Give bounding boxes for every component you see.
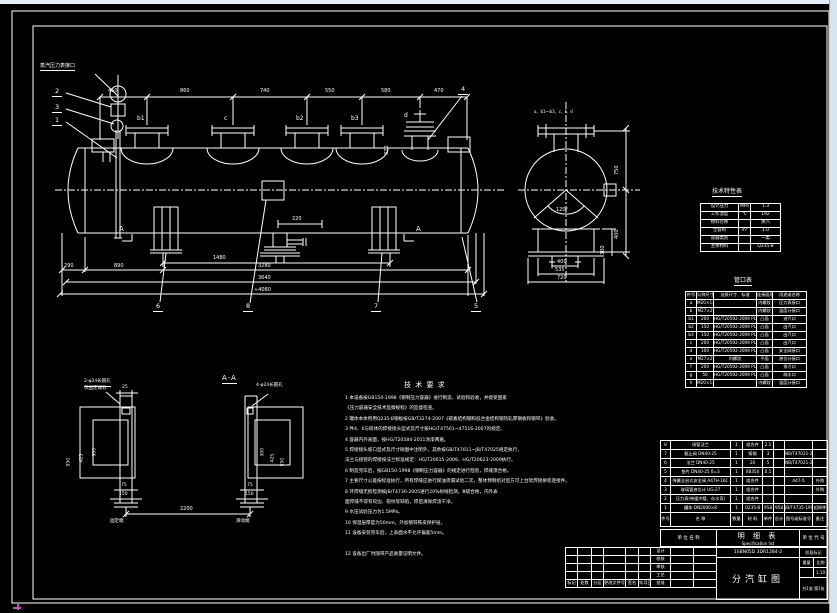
nozzle-table: 符号公称尺寸连接尺寸、标准连接面形式用途或名称 aM20×1.5内螺纹压力表接口… <box>685 291 807 388</box>
dim-3280: 3280 <box>258 264 271 269</box>
table-row: 容器类别一类 <box>701 236 781 244</box>
table-row: b3150HG/T20592-2009 PL150(B)-25 RF凸面出汽口 <box>686 332 807 340</box>
cad-drawing-canvas: 蒸汽压力表接口 2 3 1 4 6 8 7 5 b1 c b2 b3 d 450… <box>0 0 837 613</box>
notes-title: 技 术 要 求 <box>404 382 446 389</box>
dim-220: 220 <box>292 217 302 222</box>
table-row: 2压力表(带缓冲管、存水弯)1组合件 <box>661 495 828 504</box>
table-row: d100HG/T20592-2009 PL100(B)-25 RF凸面安全阀接口 <box>686 348 807 356</box>
note-line: 9 水压试验压力为1.5MPa。 <box>345 508 567 518</box>
table-row: hM20×1.5内螺纹温度计接口 <box>686 380 807 388</box>
nozzle-label-c: c <box>224 116 227 122</box>
dim-400-bottom: 400 <box>557 260 567 265</box>
balloon-item-3: 3 <box>52 104 62 113</box>
dim-4080: ≈4080 <box>254 288 271 293</box>
aa-dim-550-left: 550 <box>68 458 73 467</box>
aa-right-note: 4-φ24长圆孔 <box>256 384 283 389</box>
dim-75-right: 75 <box>247 484 253 489</box>
nozzle-label-b1: b1 <box>137 116 145 122</box>
dim-top-4: 550 <box>325 89 335 94</box>
bom-table: 8接管法兰1组合件2.17截止阀 DN40-251铸钢3NB/T47021-20… <box>660 440 828 527</box>
table-row: b1200HG/T20592-2009 PL200(B)-25 RF凸面进汽口 <box>686 316 807 324</box>
table-row: 设计压力MPa1.3 <box>701 204 781 212</box>
section-mark-a-left: A <box>119 226 125 233</box>
table-row: 8接管法兰1组合件2.1 <box>661 441 828 450</box>
note-line: 4 容器内外表面，按HG/T20584-2011涂漆两遍。 <box>345 436 567 446</box>
bom-list-title-en: Specification list <box>742 541 775 546</box>
dim-750: 750 <box>615 165 620 175</box>
table-row: 5垫片 DN40-25 δ=31XB3500.1 <box>661 468 828 477</box>
technical-notes: 1 本设备按GB150-1998《钢制压力容器》进行制造、试验和验收，并接受国家… <box>345 394 567 560</box>
label-fixed-end: 固定端 <box>110 520 124 525</box>
note-line: 3 件4、6与筒体的焊接接头型式及尺寸按HG/T47501~47516-2007… <box>345 425 567 435</box>
valve-body-circle <box>111 120 123 132</box>
balloon-item-8: 8 <box>243 303 253 312</box>
note-line: 面焊缝不得有咬边、裂纹等缺陷，焊后清除焊渣干净。 <box>345 498 567 508</box>
dim-150-left: 150 <box>119 493 128 498</box>
pressure-gauge-callout: 蒸汽压力表接口 <box>40 64 75 71</box>
aa-dim-300-left: 300 <box>94 448 99 457</box>
balloon-item-1: 1 <box>52 117 62 126</box>
aa-dim-300-right: 300 <box>262 448 267 457</box>
bom-unit-code-cell: 单 位 代 号 <box>799 529 828 547</box>
aa-dim-425-left: 425 <box>81 454 86 463</box>
dim-370: 370 <box>385 145 390 155</box>
note-line: 6 制造完毕后，按GB150-1998《钢制压力容器》的规定进行检验，焊缝须合格… <box>345 467 567 477</box>
table-row: b2150HG/T20592-2009 PL150(B)-25 RF凸面出汽口 <box>686 324 807 332</box>
dim-75-left: 75 <box>121 484 127 489</box>
front-view-lines <box>68 75 478 263</box>
dim-890: 890 <box>114 264 124 269</box>
table-row: bM27×2内螺纹温度计接口 <box>686 308 807 316</box>
dim-3640: 3640 <box>258 276 271 281</box>
centerlines <box>55 102 640 282</box>
table-row: 6法兰 DN40-251205NB/T47021-2012 <box>661 459 828 468</box>
table-row: 工艺 <box>651 572 717 580</box>
dim-top-2: 860 <box>180 89 190 94</box>
nozzle-table-header: 符号公称尺寸连接尺寸、标准连接面形式用途或名称 <box>686 292 807 300</box>
aa-dim-550-right: 550 <box>282 458 287 467</box>
note-line: 11 设备安装完毕后，上表面水平允许偏差5mm。 <box>345 529 567 539</box>
label-sliding-end: 滑动端 <box>236 520 250 525</box>
note-line <box>345 539 567 549</box>
bom-unit-name-cell: 单 位 名 称 <box>660 529 717 547</box>
note-line: 12 设备出厂时随带产品质量证明文件。 <box>345 550 567 560</box>
dim-top-6: 470 <box>434 89 444 94</box>
revision-labels-row: 标记处数分区更改文件号签名年月日 <box>566 580 651 588</box>
table-row: c200HG/T20592-2009 PL200(B)-25 RF凸面出汽口 <box>686 340 807 348</box>
note-line: 2 罐体本体所用Q235-B钢板按GB/T3274-2007《碳素结构钢和低合金… <box>345 415 567 425</box>
table-row: 主体材料Q235-B <box>701 244 781 252</box>
sheet-info-cell: 共1张 第1张 <box>799 577 828 600</box>
spec-table: 设计压力MPa1.3工作温度℃192物料名称蒸汽全容积m³1.0容器类别一类主体… <box>700 203 781 252</box>
drawing-title-cell: 分汽缸图 <box>716 557 800 600</box>
nozzle-label-b2: b2 <box>296 116 304 122</box>
dim-top-1: 450 <box>108 89 118 94</box>
table-row: f200HG/T20592-2009 PL200(B)-25 RF凸面排污口 <box>686 364 807 372</box>
table-row: 全容积m³1.0 <box>701 228 781 236</box>
table-row: 校核 <box>651 556 717 564</box>
saddle-angle: 120° <box>556 208 568 213</box>
dim-150-right: 150 <box>245 493 254 498</box>
note-line: 《压力容器安全技术监察规程》的监督检查。 <box>345 404 567 414</box>
table-row: eM27×2内螺纹平面液位计接口 <box>686 356 807 364</box>
table-row: 物料名称蒸汽 <box>701 220 781 228</box>
table-row: 设计 <box>651 548 717 556</box>
note-line: 法兰与接管的焊接按法兰标准规定：HG/T20615-2009、HG/T20623… <box>345 456 567 466</box>
table-row: 1罐体 DN2000×81Q235-B958958JB/T4735-1997组焊… <box>661 504 828 513</box>
balloon-item-6: 6 <box>153 303 163 312</box>
bom-list-title-cell: 明 细 表 Specification list <box>716 529 800 547</box>
dim-290: 290 <box>64 264 74 269</box>
dim-400-right: 400 <box>615 229 620 239</box>
aa-dim-425-right: 425 <box>272 454 277 463</box>
bom-header-row: 件号名 称数量材 料单件总计图号或标准号备注 <box>661 513 828 527</box>
table-row: 批准 <box>651 580 717 588</box>
balloon-item-5: 5 <box>471 303 481 312</box>
table-row: 4弹簧全启式安全阀 A47H-16C1组合件A47-5外购 <box>661 477 828 486</box>
note-line: 5 焊接接头坡口型式及尺寸除图中注明外，其余按GB/T47011~JB/T470… <box>345 446 567 456</box>
note-line: 1 本设备按GB150-1998《钢制压力容器》进行制造、试验和验收，并接受国家 <box>345 394 567 404</box>
signature-table: 设计校核审核工艺批准 <box>650 547 717 588</box>
note-line: 10 保温层厚度为50mm，外加镀锌铁皮保护层。 <box>345 519 567 529</box>
section-aa-title: A-A <box>222 375 237 384</box>
balloon-item-2: 2 <box>52 88 62 97</box>
note-line: 7 主要尺寸公差按标准执行，所有焊缝应进行煤油渗漏试验二次，整体预制组对后方可上… <box>345 477 567 487</box>
section-mark-a-right: A <box>416 226 422 233</box>
table-row: 7截止阀 DN40-251铸钢3NB/T47021-2012 <box>661 450 828 459</box>
table-row: 审核 <box>651 564 717 572</box>
dim-top-3: 740 <box>260 89 270 94</box>
nozzle-table-title: 管口表 <box>734 278 752 286</box>
dim-1480: 1480 <box>213 256 226 261</box>
dim-300: 300 <box>601 245 606 255</box>
end-view-nozzle-note: a、b1～b3、c、f、d <box>534 110 573 114</box>
table-row: 3玻璃管液位计 UG-271组合件外购 <box>661 486 828 495</box>
spec-table-title: 技术特性表 <box>712 189 742 197</box>
dim-720: 720 <box>557 276 567 281</box>
dim-25: 25 <box>122 386 128 391</box>
balloon-item-7: 7 <box>371 303 381 312</box>
balloon-item-4: 4 <box>458 86 468 95</box>
dim-top-5: 580 <box>381 89 391 94</box>
nozzle-label-d: d <box>404 113 408 119</box>
revision-table: 标记处数分区更改文件号签名年月日 <box>565 547 651 588</box>
table-row: aM20×1.5内螺纹压力表接口 <box>686 300 807 308</box>
table-row: 工作温度℃192 <box>701 212 781 220</box>
dim-2200: 2200 <box>180 507 193 512</box>
table-row: g50HG/T20592-2009 PL50(B)-25 RF凸面疏水口 <box>686 372 807 380</box>
nozzle-label-b3: b3 <box>351 116 359 122</box>
dim-535: 535 <box>555 268 565 273</box>
aa-left-note-line2: 仅固定端有 <box>84 387 107 392</box>
note-line: 8 环焊缝无损检测按JB/T4730-2005进行20%射线检测，Ⅲ级合格，内外… <box>345 488 567 498</box>
bom-list-title: 明 细 表 <box>738 531 778 541</box>
